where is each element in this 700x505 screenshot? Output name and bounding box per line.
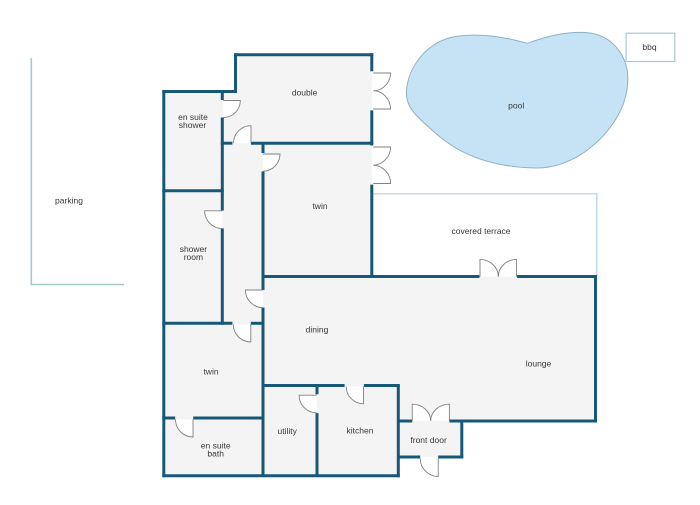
svg-text:parking: parking bbox=[55, 195, 83, 205]
svg-text:dining: dining bbox=[306, 325, 329, 335]
svg-text:kitchen: kitchen bbox=[347, 426, 374, 436]
svg-text:double: double bbox=[292, 88, 318, 98]
svg-text:twin: twin bbox=[312, 201, 327, 211]
svg-text:covered terrace: covered terrace bbox=[451, 226, 510, 236]
svg-text:front door: front door bbox=[410, 435, 447, 445]
svg-text:shower: shower bbox=[179, 120, 207, 130]
svg-text:twin: twin bbox=[203, 367, 218, 377]
svg-text:bbq: bbq bbox=[642, 42, 656, 52]
svg-text:pool: pool bbox=[508, 100, 524, 110]
svg-text:utility: utility bbox=[278, 426, 298, 436]
svg-text:room: room bbox=[184, 252, 203, 262]
svg-text:bath: bath bbox=[207, 448, 224, 458]
svg-text:lounge: lounge bbox=[526, 359, 552, 369]
